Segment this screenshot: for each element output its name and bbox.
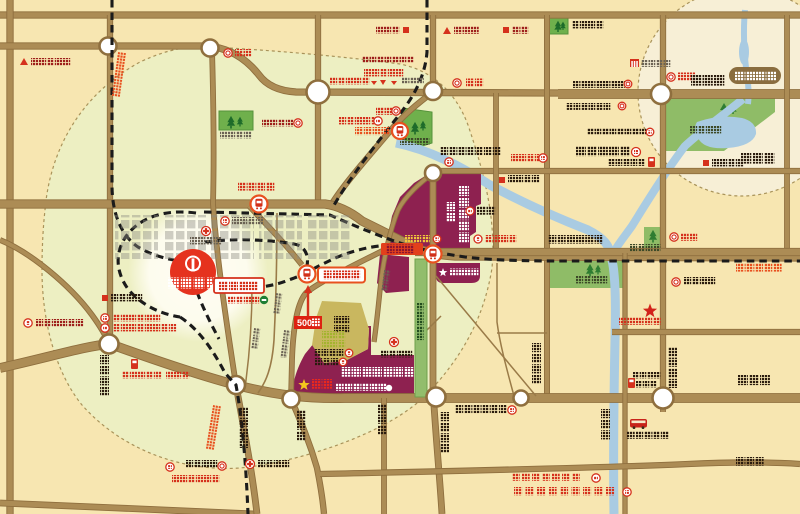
svg-text:500: 500 — [297, 318, 312, 328]
